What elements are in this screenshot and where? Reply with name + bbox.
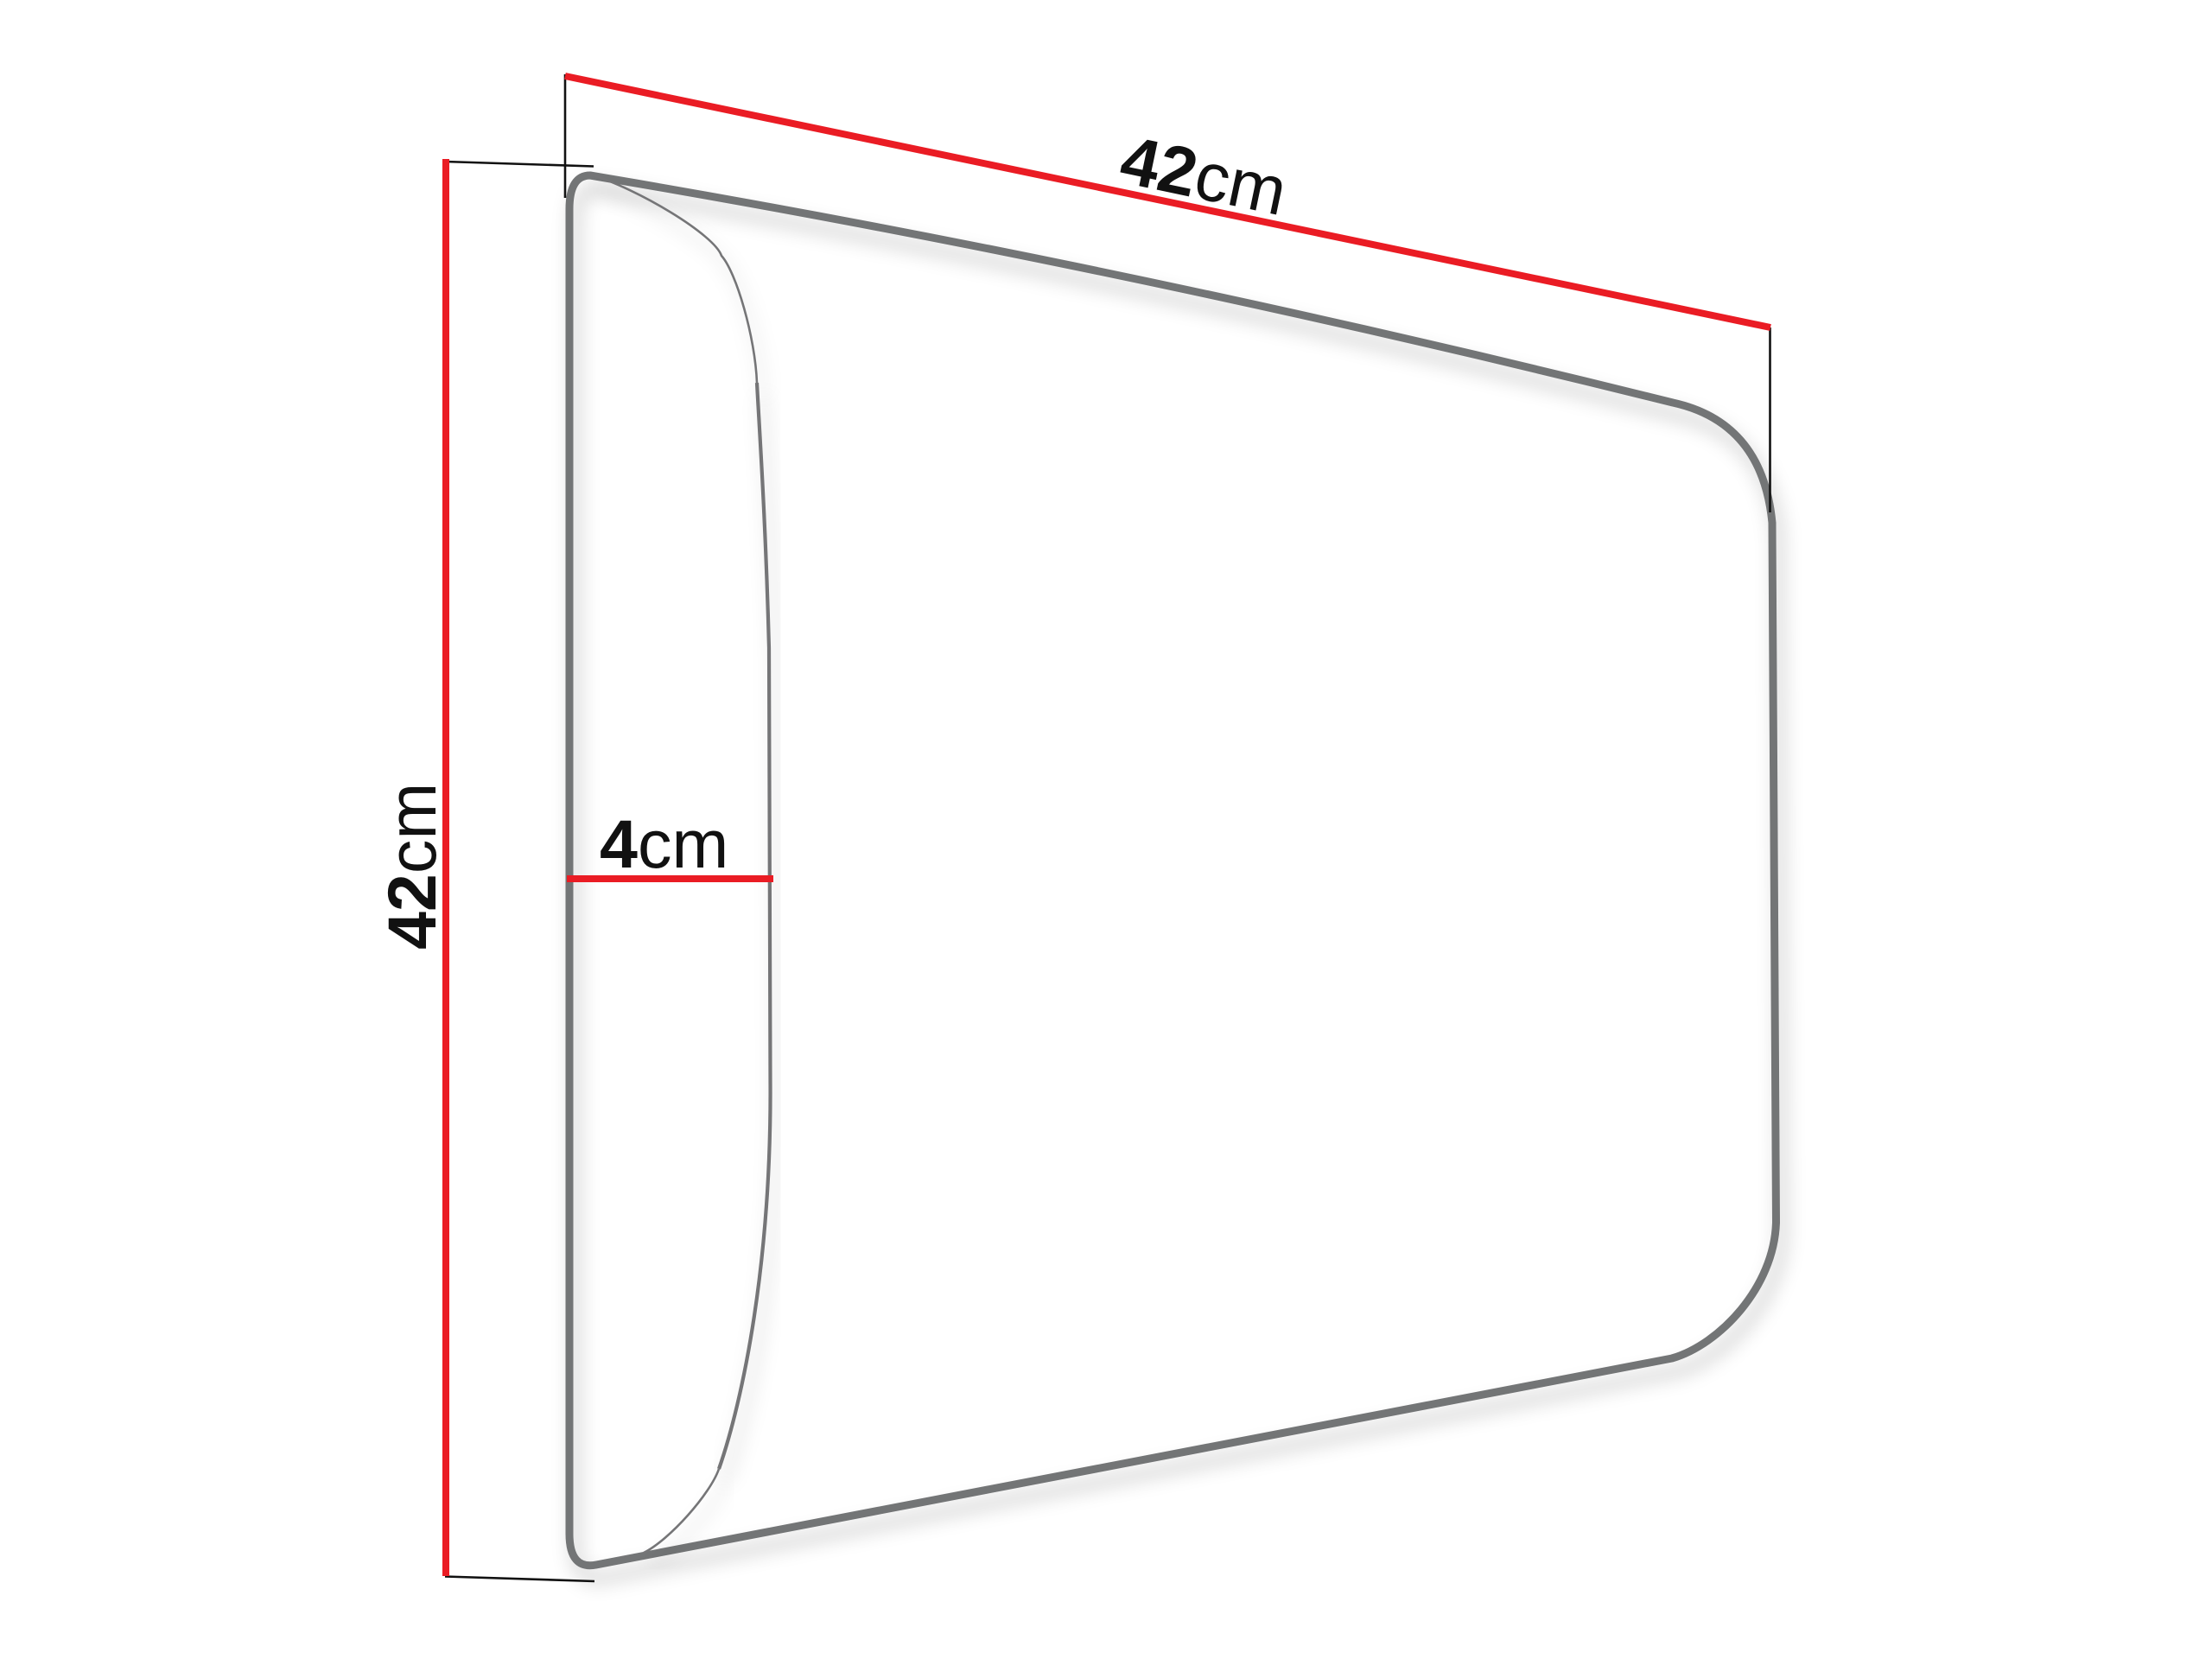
svg-text:4cm: 4cm (600, 805, 728, 882)
svg-text:42cm: 42cm (373, 783, 450, 950)
svg-text:42cm: 42cm (1115, 121, 1294, 231)
